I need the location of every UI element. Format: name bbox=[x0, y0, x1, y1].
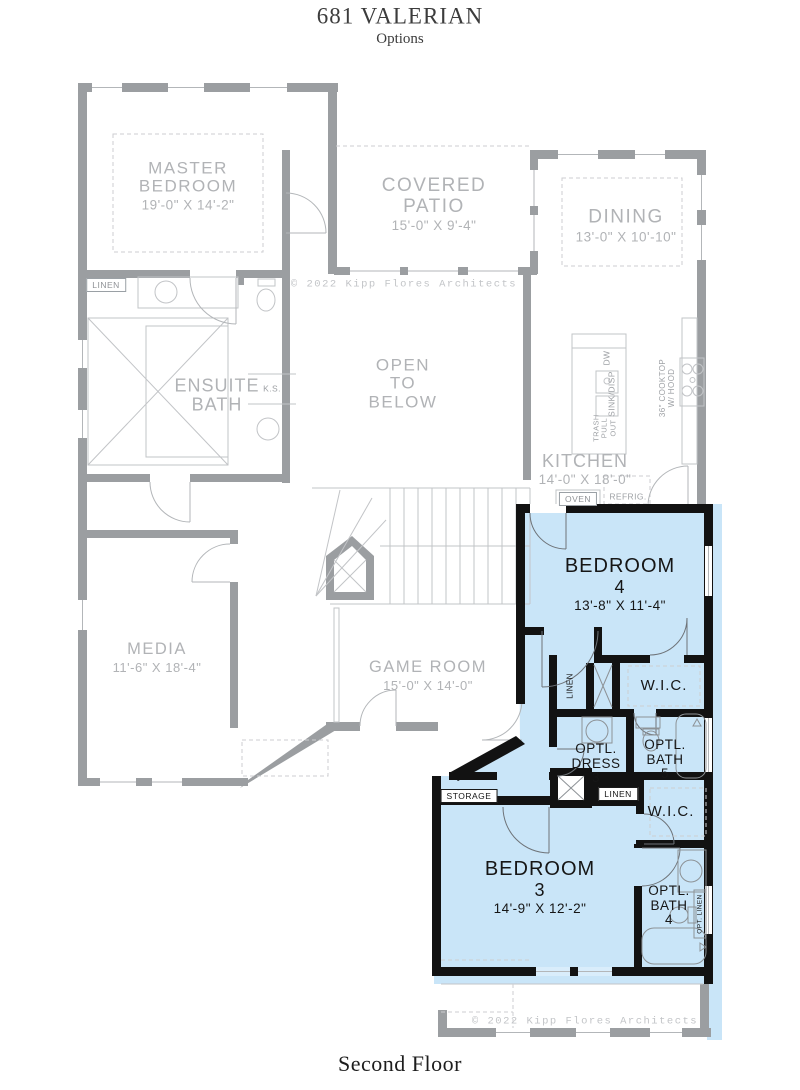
open-to-below-line3: BELOW bbox=[369, 393, 438, 411]
open-to-below-line2: TO bbox=[369, 375, 438, 393]
room-label-bedroom-3: BEDROOM 3 14'-9" X 12'-2" bbox=[485, 859, 595, 917]
page-title: 681 VALERIAN bbox=[317, 5, 483, 30]
optl-dress-3-line1: OPTL. bbox=[571, 742, 620, 757]
floor-label: Second Floor bbox=[338, 1052, 462, 1076]
covered-patio-name-line2: PATIO bbox=[382, 197, 486, 218]
optl-dress-3-line3: 3 bbox=[571, 771, 620, 786]
covered-patio-name-line1: COVERED bbox=[382, 176, 486, 197]
copyright-top: © 2022 Kipp Flores Architects bbox=[291, 279, 517, 290]
kitchen-name: KITCHEN bbox=[539, 452, 632, 471]
refrig-label: REFRIG. bbox=[609, 492, 646, 501]
dw-label: DW bbox=[602, 351, 611, 366]
floorplan-page: 681 VALERIAN Options MASTER BEDROOM 19'-… bbox=[0, 0, 800, 1090]
optl-bath-4-line2: BATH bbox=[648, 899, 690, 914]
room-label-kitchen: KITCHEN 14'-0" X 18'-0" bbox=[539, 452, 632, 488]
bedroom-3-name-line1: BEDROOM bbox=[485, 859, 595, 881]
covered-patio-dims: 15'-0" X 9'-4" bbox=[382, 219, 486, 234]
media-name: MEDIA bbox=[113, 641, 202, 659]
oven-label: OVEN bbox=[559, 492, 597, 506]
kitchen-dims: 14'-0" X 18'-0" bbox=[539, 473, 632, 488]
bedroom-3-dims: 14'-9" X 12'-2" bbox=[485, 902, 595, 917]
dining-name: DINING bbox=[576, 207, 677, 228]
room-label-dining: DINING 13'-0" X 10'-10" bbox=[576, 207, 677, 244]
bedroom-3-name-line2: 3 bbox=[485, 881, 595, 900]
sink-disp-label: SINK/DISP bbox=[607, 371, 616, 417]
page-subtitle: Options bbox=[376, 31, 424, 47]
storage-label: STORAGE bbox=[441, 789, 498, 803]
cooktop-line2: W/ HOOD bbox=[668, 359, 677, 417]
opt-linen-label: OPT. LINEN bbox=[696, 894, 703, 933]
room-label-media: MEDIA 11'-6" X 18'-4" bbox=[113, 641, 202, 675]
trash-line3: OUT bbox=[609, 414, 617, 441]
linen-master-label: LINEN bbox=[86, 278, 126, 292]
optl-bath-5-line3: 5 bbox=[644, 767, 686, 782]
master-bedroom-name-line2: BEDROOM bbox=[139, 178, 237, 196]
game-room-dims: 15'-0" X 14'-0" bbox=[369, 679, 487, 693]
media-dims: 11'-6" X 18'-4" bbox=[113, 661, 202, 675]
linen-closet-label: LINEN bbox=[567, 673, 576, 699]
master-bedroom-name-line1: MASTER bbox=[139, 159, 237, 177]
room-label-open-to-below: OPEN TO BELOW bbox=[369, 356, 438, 411]
game-room-name: GAME ROOM bbox=[369, 659, 487, 677]
optl-bath-5-line2: BATH bbox=[644, 753, 686, 768]
room-label-game-room: GAME ROOM 15'-0" X 14'-0" bbox=[369, 659, 487, 693]
dining-dims: 13'-0" X 10'-10" bbox=[576, 230, 677, 245]
linen-hall-label: LINEN bbox=[598, 787, 638, 801]
room-label-covered-patio: COVERED PATIO 15'-0" X 9'-4" bbox=[382, 176, 486, 234]
room-label-optl-bath-5: OPTL. BATH 5 bbox=[644, 738, 686, 782]
ensuite-bath-name-line1: ENSUITE bbox=[174, 377, 259, 396]
open-to-below-line1: OPEN bbox=[369, 356, 438, 374]
bedroom-4-name-line2: 4 bbox=[565, 578, 675, 597]
optl-bath-4-line1: OPTL. bbox=[648, 884, 690, 899]
ensuite-bath-name-line2: BATH bbox=[174, 396, 259, 415]
optl-bath-4-line3: 4 bbox=[648, 913, 690, 928]
room-label-optl-dress-3: OPTL. DRESS 3 bbox=[571, 742, 620, 786]
room-label-bedroom-4: BEDROOM 4 13'-8" X 11'-4" bbox=[565, 556, 675, 614]
ks-label: K.S. bbox=[263, 384, 281, 393]
wic-lower-label: W.I.C. bbox=[648, 804, 695, 820]
room-label-ensuite-bath: ENSUITE BATH bbox=[174, 377, 259, 416]
trash-pullout-label: TRASH PULL OUT bbox=[593, 414, 618, 441]
optl-dress-3-line2: DRESS bbox=[571, 757, 620, 772]
bedroom-4-name-line1: BEDROOM bbox=[565, 556, 675, 578]
master-bedroom-dims: 19'-0" X 14'-2" bbox=[139, 198, 237, 213]
optl-bath-5-line1: OPTL. bbox=[644, 738, 686, 753]
copyright-bottom: © 2022 Kipp Flores Architects bbox=[472, 1016, 698, 1027]
wic-upper-label: W.I.C. bbox=[641, 678, 688, 694]
bedroom-4-dims: 13'-8" X 11'-4" bbox=[565, 599, 675, 614]
room-label-master-bedroom: MASTER BEDROOM 19'-0" X 14'-2" bbox=[139, 159, 237, 212]
room-label-optl-bath-4: OPTL. BATH 4 bbox=[648, 884, 690, 928]
cooktop-label: 36" COOKTOP W/ HOOD bbox=[659, 359, 677, 417]
